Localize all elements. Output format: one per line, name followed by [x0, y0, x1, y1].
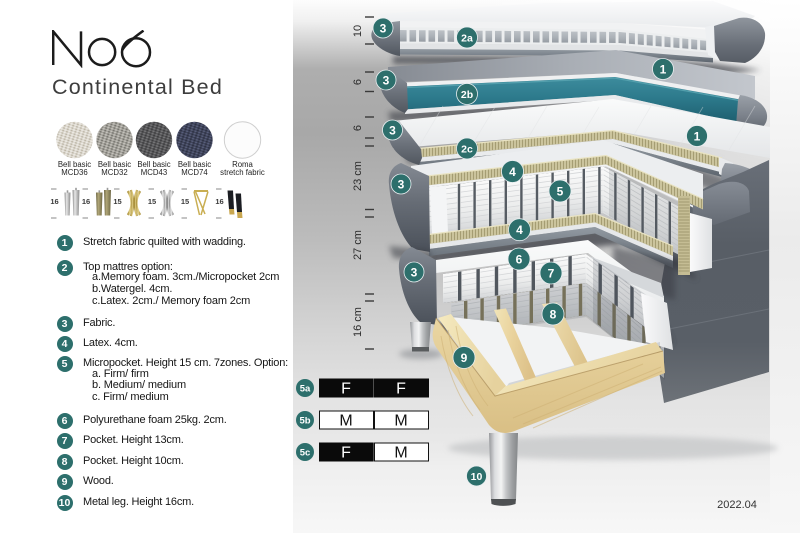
svg-text:2a: 2a [461, 32, 473, 44]
svg-text:3: 3 [383, 73, 390, 87]
svg-text:F: F [341, 381, 351, 398]
svg-text:3: 3 [389, 123, 396, 137]
svg-text:15: 15 [113, 197, 121, 206]
svg-text:F: F [341, 445, 351, 462]
svg-text:3: 3 [380, 21, 387, 35]
svg-text:9: 9 [461, 351, 468, 365]
svg-text:1: 1 [660, 62, 667, 76]
svg-text:4: 4 [516, 223, 523, 237]
svg-text:M: M [339, 413, 352, 430]
svg-text:M: M [394, 413, 407, 430]
svg-text:2c: 2c [461, 143, 473, 155]
svg-text:6: 6 [516, 252, 523, 266]
svg-text:10: 10 [471, 471, 483, 483]
svg-text:2022.04: 2022.04 [717, 499, 757, 511]
svg-text:1: 1 [694, 129, 701, 143]
svg-text:7: 7 [548, 266, 555, 280]
svg-text:5: 5 [557, 184, 564, 198]
svg-text:8: 8 [550, 307, 557, 321]
svg-text:4: 4 [509, 165, 516, 179]
svg-text:15: 15 [181, 197, 189, 206]
svg-text:27 cm: 27 cm [352, 230, 364, 260]
svg-text:5b: 5b [299, 415, 310, 426]
svg-text:2b: 2b [461, 89, 473, 101]
svg-text:16 cm: 16 cm [352, 307, 364, 337]
svg-text:3: 3 [398, 177, 405, 191]
svg-text:16: 16 [50, 197, 58, 206]
svg-text:3: 3 [411, 265, 418, 279]
svg-text:23 cm: 23 cm [352, 161, 364, 191]
svg-text:6: 6 [352, 79, 364, 85]
svg-text:10: 10 [352, 25, 364, 37]
svg-text:6: 6 [352, 125, 364, 131]
svg-text:F: F [396, 381, 406, 398]
svg-text:15: 15 [148, 197, 156, 206]
svg-text:16: 16 [215, 197, 223, 206]
svg-text:16: 16 [82, 197, 90, 206]
svg-text:M: M [394, 445, 407, 462]
svg-text:5c: 5c [300, 447, 311, 458]
svg-text:5a: 5a [300, 383, 311, 394]
